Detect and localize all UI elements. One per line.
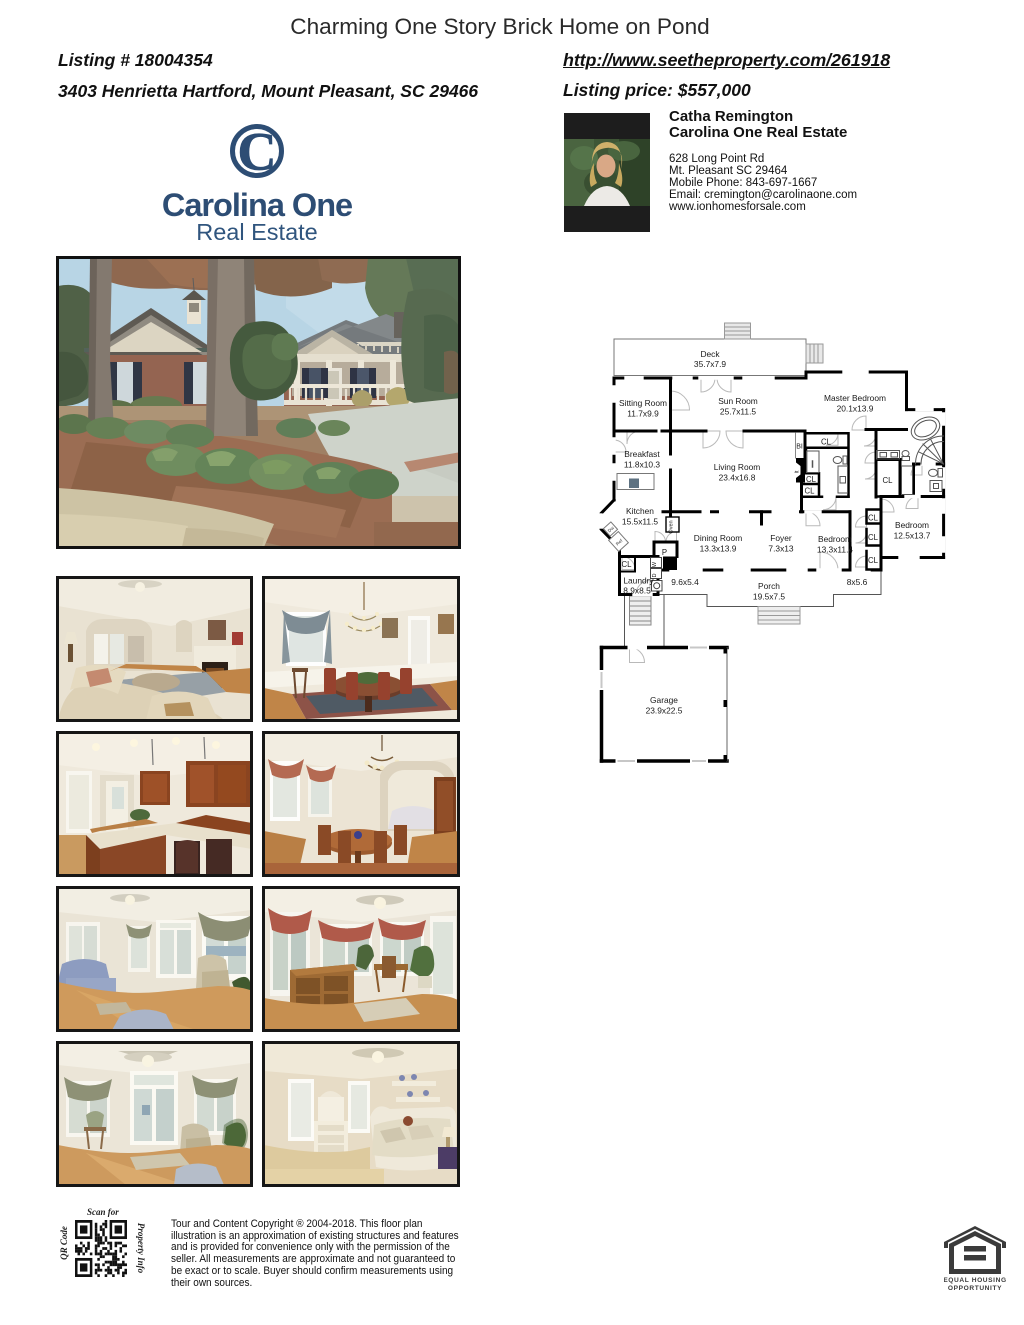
svg-text:CL: CL xyxy=(868,556,879,565)
svg-text:20.1x13.9: 20.1x13.9 xyxy=(837,404,874,414)
svg-text:BI: BI xyxy=(796,444,803,451)
svg-text:13.3x13.9: 13.3x13.9 xyxy=(700,544,737,554)
svg-text:Foyer: Foyer xyxy=(770,533,792,543)
svg-text:11.8x10.3: 11.8x10.3 xyxy=(624,460,661,470)
svg-text:Garage: Garage xyxy=(650,695,678,705)
svg-text:15.5x11.5: 15.5x11.5 xyxy=(622,517,659,527)
svg-text:Porch: Porch xyxy=(758,581,780,591)
svg-text:Bedroom: Bedroom xyxy=(818,534,852,544)
svg-text:EQUAL HOUSING: EQUAL HOUSING xyxy=(944,1277,1006,1284)
svg-text:Carolina One: Carolina One xyxy=(162,187,352,223)
svg-text:23.4x16.8: 23.4x16.8 xyxy=(719,473,756,483)
svg-text:Bedroom: Bedroom xyxy=(895,520,929,530)
svg-text:CL: CL xyxy=(883,476,894,485)
svg-text:CL: CL xyxy=(805,487,816,496)
svg-text:CL: CL xyxy=(868,533,879,542)
svg-text:D: D xyxy=(652,573,658,577)
svg-text:11.7x9.9: 11.7x9.9 xyxy=(627,409,659,419)
svg-text:Kitchen: Kitchen xyxy=(626,506,654,516)
svg-text:Dining Room: Dining Room xyxy=(694,533,742,543)
svg-text:CL: CL xyxy=(868,514,879,523)
svg-text:Living Room: Living Room xyxy=(714,462,761,472)
svg-text:CL: CL xyxy=(821,438,832,447)
svg-text:Real Estate: Real Estate xyxy=(196,219,317,244)
svg-text:CL: CL xyxy=(806,475,817,484)
svg-text:CL: CL xyxy=(622,560,633,569)
svg-text:8.9x8.5: 8.9x8.5 xyxy=(623,586,651,596)
svg-text:7.3x13: 7.3x13 xyxy=(768,544,793,554)
svg-text:19.5x7.5: 19.5x7.5 xyxy=(753,592,785,602)
svg-text:OPPORTUNITY: OPPORTUNITY xyxy=(948,1285,1002,1292)
svg-text:Deck: Deck xyxy=(700,349,720,359)
svg-text:Oven: Oven xyxy=(668,520,674,533)
svg-text:35.7x7.9: 35.7x7.9 xyxy=(694,359,726,369)
svg-text:Breakfast: Breakfast xyxy=(624,449,660,459)
svg-text:9.6x5.4: 9.6x5.4 xyxy=(671,577,699,587)
svg-text:Sun Room: Sun Room xyxy=(718,396,758,406)
svg-text:C: C xyxy=(238,122,277,182)
svg-text:Sitting Room: Sitting Room xyxy=(619,398,667,408)
svg-text:8x5.6: 8x5.6 xyxy=(847,577,868,587)
svg-text:23.9x22.5: 23.9x22.5 xyxy=(646,706,683,716)
svg-text:12.5x13.7: 12.5x13.7 xyxy=(894,531,931,541)
svg-text:Laundry: Laundry xyxy=(623,576,654,586)
svg-text:lt: lt xyxy=(795,470,801,473)
svg-text:W: W xyxy=(652,561,658,567)
svg-text:13.3x11.4: 13.3x11.4 xyxy=(817,545,854,555)
svg-text:P: P xyxy=(662,548,667,557)
svg-text:Master Bedroom: Master Bedroom xyxy=(824,393,886,403)
svg-text:25.7x11.5: 25.7x11.5 xyxy=(720,407,757,417)
